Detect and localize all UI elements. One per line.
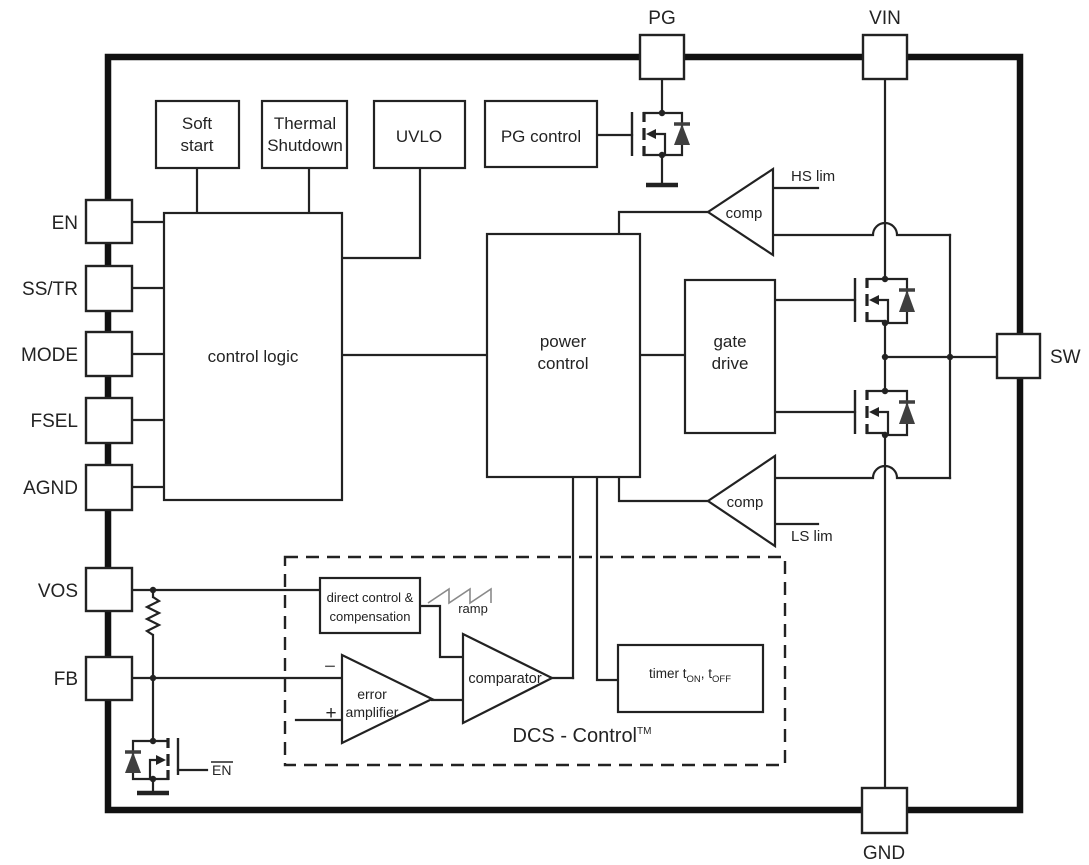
wire-hscomp-sense <box>773 223 950 235</box>
power-control-label-1: power <box>540 332 587 351</box>
error-amp-label-2: amplifier <box>346 704 399 720</box>
diagram-canvas: PG VIN SW GND EN SS/TR MODE FSEL AGND VO… <box>0 0 1089 865</box>
pin-fsel <box>86 398 132 443</box>
pin-agnd <box>86 465 132 510</box>
pin-label-en: EN <box>52 213 78 234</box>
timer-sub-off: OFF <box>712 674 731 685</box>
soft-start-label-1: Soft <box>182 114 213 133</box>
wire-powercontrol-to-timer <box>597 477 618 680</box>
wire-lscomp-out <box>619 477 708 501</box>
pg-mosfet <box>632 112 690 156</box>
pin-label-fb: FB <box>54 669 78 690</box>
ls-lim-label: LS lim <box>791 528 833 545</box>
discharge-body-diode <box>125 752 141 773</box>
ramp-label: ramp <box>458 601 488 616</box>
timer-sub-on: ON <box>687 674 701 685</box>
direct-control-label-1: direct control & <box>327 590 414 605</box>
error-amp-label-1: error <box>357 686 387 702</box>
timer-mid: , t <box>701 666 713 681</box>
ls-mosfet <box>855 390 915 435</box>
hs-body-diode <box>899 290 915 312</box>
pin-pg <box>640 35 684 79</box>
error-amp-minus: − <box>324 656 336 678</box>
pin-label-vos: VOS <box>38 581 78 602</box>
wire-uvlo-to-controllogic <box>342 168 420 258</box>
dcs-tm-superscript: TM <box>637 726 651 737</box>
pin-label-sstr: SS/TR <box>22 279 78 300</box>
pin-label-gnd: GND <box>863 843 905 864</box>
pin-label-agnd: AGND <box>23 478 78 499</box>
wire-directcontrol-to-comparator <box>420 606 463 657</box>
hs-mosfet <box>855 278 915 323</box>
soft-start-block <box>156 101 239 168</box>
blocks <box>156 101 775 712</box>
hs-comp-label: comp <box>726 205 763 222</box>
pin-label-vin: VIN <box>869 8 901 29</box>
comparator-label: comparator <box>468 671 542 687</box>
gate-drive-label-2: drive <box>712 354 749 373</box>
ls-comp-label: comp <box>727 494 764 511</box>
timer-prefix: timer t <box>649 666 687 681</box>
thermal-shutdown-block <box>262 101 347 168</box>
uvlo-label: UVLO <box>396 127 442 146</box>
control-logic-label: control logic <box>208 347 299 366</box>
pg-control-label: PG control <box>501 127 581 146</box>
pin-mode <box>86 332 132 376</box>
pin-sstr <box>86 266 132 311</box>
dcs-control-text: DCS - Control <box>513 725 637 747</box>
wire-lscomp-sense <box>773 466 950 478</box>
pin-label-pg: PG <box>648 8 675 29</box>
soft-start-label-2: start <box>180 136 213 155</box>
direct-control-label-2: compensation <box>330 609 411 624</box>
error-amplifier <box>342 655 432 743</box>
pin-vos <box>86 568 132 611</box>
pin-label-sw: SW <box>1050 347 1081 368</box>
direct-control-block <box>320 578 420 633</box>
gate-drive-label-1: gate <box>713 332 746 351</box>
wire-hscomp-out <box>619 212 708 234</box>
hs-lim-label: HS lim <box>791 168 835 185</box>
discharge-gate-en-label: EN <box>212 762 231 778</box>
pg-body-diode <box>674 124 690 145</box>
ls-body-diode <box>899 402 915 424</box>
thermal-label-1: Thermal <box>274 114 336 133</box>
fb-discharge-mosfet <box>125 738 178 780</box>
power-control-label-2: control <box>537 354 588 373</box>
resistor-symbol <box>147 597 159 635</box>
pin-fb <box>86 657 132 700</box>
functional-block-diagram: PG VIN SW GND EN SS/TR MODE FSEL AGND VO… <box>0 0 1089 865</box>
thermal-label-2: Shutdown <box>267 136 343 155</box>
pin-label-fsel: FSEL <box>30 411 78 432</box>
error-amp-plus: + <box>325 703 336 724</box>
pin-vin <box>863 35 907 79</box>
pin-en <box>86 200 132 243</box>
dcs-control-label: DCS - ControlTM <box>513 725 652 747</box>
pin-gnd <box>862 788 907 833</box>
pin-label-mode: MODE <box>21 345 78 366</box>
pin-sw <box>997 334 1040 378</box>
